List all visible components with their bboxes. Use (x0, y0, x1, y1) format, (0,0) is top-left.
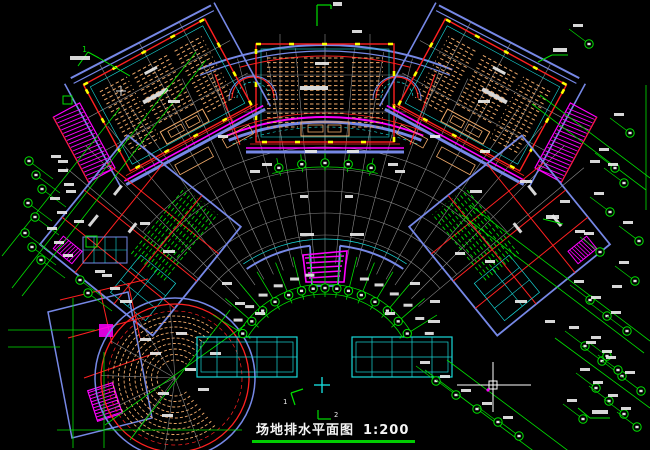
text-blob (485, 260, 495, 263)
grid-axis-bubble (515, 432, 523, 440)
text-blob (455, 252, 465, 255)
text-blob (527, 185, 537, 196)
grid-axis-bubble (298, 160, 306, 168)
text-blob (235, 302, 245, 305)
text-blob (590, 160, 600, 163)
text-blob (305, 150, 317, 153)
text-blob (47, 227, 57, 230)
grid-axis-bubble (344, 160, 352, 168)
canopy-grid (352, 337, 452, 377)
text-blob (352, 30, 362, 33)
text-blob (234, 319, 243, 322)
text-blob (560, 200, 570, 203)
text-blob (168, 100, 180, 103)
grid-axis-bubble (620, 179, 628, 187)
text-blob (110, 287, 120, 290)
drawing-title-text: 场地排水平面图 (256, 423, 354, 438)
grid-axis-bubble (452, 391, 460, 399)
text-blob (425, 332, 434, 335)
text-blob (360, 278, 369, 281)
seat-row-arc (124, 327, 208, 429)
text-blob (625, 371, 635, 374)
text-blob (88, 214, 99, 227)
grid-axis-bubble (394, 317, 402, 325)
text-blob (580, 368, 590, 371)
text-blob (410, 282, 420, 285)
cad-drawing-stage: 112 场地排水平面图1:200 (0, 0, 650, 450)
text-blob (113, 185, 123, 196)
grid-axis-bubble (76, 276, 84, 284)
grid-axis-bubble (321, 159, 329, 167)
grid-axis-bubble (367, 164, 375, 172)
grid-axis-bubble (84, 289, 92, 297)
text-blob (57, 211, 67, 214)
wing-block (371, 1, 609, 215)
grid-axis-bubble (24, 199, 32, 207)
drawing-title-block: 场地排水平面图1:200 (252, 419, 415, 443)
text-blob (461, 389, 471, 392)
text-blob (158, 392, 169, 395)
text-blob (185, 368, 196, 371)
grid-axis-bubble (614, 366, 622, 374)
text-blob (64, 183, 74, 186)
text-blob (70, 56, 90, 60)
text-blob (50, 197, 60, 200)
text-blob (375, 283, 384, 286)
text-blob (66, 190, 76, 193)
text-blob (300, 195, 308, 198)
text-blob (599, 148, 609, 151)
text-blob (480, 150, 490, 153)
text-blob (546, 215, 559, 219)
text-blob (255, 312, 265, 315)
seat-row-arc (113, 316, 215, 440)
text-blob (102, 274, 112, 277)
text-blob (430, 300, 440, 303)
grid-axis-bubble (596, 248, 604, 256)
text-blob (611, 311, 621, 314)
text-blob (602, 350, 612, 353)
green-marker-square (63, 96, 72, 104)
text-blob (259, 294, 268, 297)
grid-axis-bubble (357, 291, 365, 299)
section-mark-label: 1 (283, 398, 287, 406)
grid-axis-bubble (579, 415, 587, 423)
text-blob (262, 163, 272, 166)
grid-axis-bubble (21, 229, 29, 237)
cad-viewport[interactable]: 112 (0, 0, 650, 450)
text-blob (482, 402, 492, 405)
grid-axis-bubble (239, 329, 247, 337)
text-blob (606, 356, 616, 359)
text-blob (315, 62, 329, 65)
grid-axis-bubble (37, 256, 45, 264)
text-blob (54, 241, 64, 244)
text-blob (470, 190, 482, 193)
text-blob (575, 230, 585, 233)
text-blob (621, 407, 631, 410)
text-blob (612, 285, 622, 288)
grid-axis-bubble (626, 129, 634, 137)
text-blob (51, 155, 61, 158)
grid-axis-bubble (25, 157, 33, 165)
elevation-flag (317, 5, 331, 26)
grid-axis-bubble (309, 285, 317, 293)
round-auditorium (95, 298, 255, 450)
grid-axis-bubble (321, 284, 329, 292)
text-blob (140, 222, 150, 225)
text-blob (345, 195, 353, 198)
grid-axis-bubble (633, 423, 641, 431)
text-blob (290, 278, 299, 281)
text-blob (515, 300, 527, 303)
text-blob (592, 410, 608, 414)
text-blob (198, 388, 209, 391)
text-blob (415, 317, 424, 320)
text-blob (140, 338, 151, 341)
text-blob (395, 170, 405, 173)
bottom-left-annex (48, 237, 158, 438)
text-blob (120, 300, 132, 303)
text-blob (142, 87, 169, 104)
section-marks (291, 389, 331, 419)
text-blob (403, 304, 412, 307)
text-blob (478, 100, 490, 103)
grid-axis-bubble (38, 185, 46, 193)
text-blob (388, 163, 398, 166)
text-blob (333, 2, 342, 6)
text-blob (58, 169, 68, 172)
text-blob (573, 24, 583, 27)
text-blob (430, 135, 440, 138)
grid-axis-bubble (606, 208, 614, 216)
text-blob (176, 332, 187, 335)
text-blob (95, 270, 105, 273)
grid-axis-bubble (623, 327, 631, 335)
text-blob (162, 414, 173, 417)
text-blob (347, 150, 359, 153)
grid-axis-bubble (271, 298, 279, 306)
leader-annotations (78, 52, 610, 418)
grid-axis-bubble (31, 213, 39, 221)
text-blob (420, 361, 430, 364)
text-blob (390, 292, 399, 295)
grid-axis-bubble (585, 40, 593, 48)
text-blob (593, 381, 603, 384)
text-blob (553, 48, 567, 52)
text-blob (250, 170, 260, 173)
text-blob (623, 221, 633, 224)
text-blob (385, 312, 395, 315)
grid-axis-bubble (637, 387, 645, 395)
grid-axis-bubble (333, 285, 341, 293)
text-blob (300, 233, 314, 236)
leader-label: 1 (82, 45, 87, 54)
text-blob (245, 305, 254, 308)
grid-axis-bubble (605, 397, 613, 405)
text-blob (350, 233, 364, 236)
text-blob (210, 352, 221, 355)
grid-axis-bubble (28, 243, 36, 251)
drawing-scale: 1:200 (363, 423, 409, 438)
text-blob (274, 284, 283, 287)
text-blob (300, 86, 328, 90)
text-blob (608, 394, 618, 397)
text-blob (63, 254, 73, 257)
text-blob (591, 336, 601, 339)
text-blob (614, 113, 624, 116)
cad-crosshair-cursor[interactable] (457, 362, 531, 412)
text-blob (608, 163, 618, 166)
grid-axis-bubble (284, 291, 292, 299)
text-blob (503, 416, 513, 419)
grid-axis-bubble (631, 277, 639, 285)
grid-axis-bubble (403, 329, 411, 337)
text-blob (163, 250, 175, 253)
grid-axis-bubble (32, 171, 40, 179)
grid-axis-bubble (635, 237, 643, 245)
grid-axis-bubble (344, 287, 352, 295)
text-blob (428, 320, 440, 323)
text-blob (574, 280, 584, 283)
seat-row-arc (130, 333, 205, 424)
text-blob (594, 192, 604, 195)
text-blob (440, 375, 450, 378)
text-blob (305, 274, 314, 277)
text-blob (591, 296, 601, 299)
text-blob (584, 232, 594, 235)
text-blob (150, 352, 161, 355)
text-blob (619, 261, 629, 264)
text-blob (586, 341, 596, 344)
text-blob (74, 220, 84, 223)
grid-axis-bubble (297, 287, 305, 295)
grid-axis-bubble (473, 405, 481, 413)
text-blob (545, 320, 555, 323)
grid-axis-bubble (432, 377, 440, 385)
grid-axis-bubble (494, 418, 502, 426)
grid-axis-bubble (371, 298, 379, 306)
text-blob (520, 180, 532, 183)
text-blob (222, 282, 232, 285)
grid-axis-bubble (275, 164, 283, 172)
section-mark-label: 2 (334, 411, 338, 419)
plaza-cross-mark (314, 377, 330, 393)
wing-block (41, 1, 279, 215)
text-blob (569, 326, 579, 329)
text-blob (567, 399, 577, 402)
grid-axis-bubble (248, 317, 256, 325)
text-blob (58, 160, 68, 163)
text-blob (218, 135, 228, 138)
